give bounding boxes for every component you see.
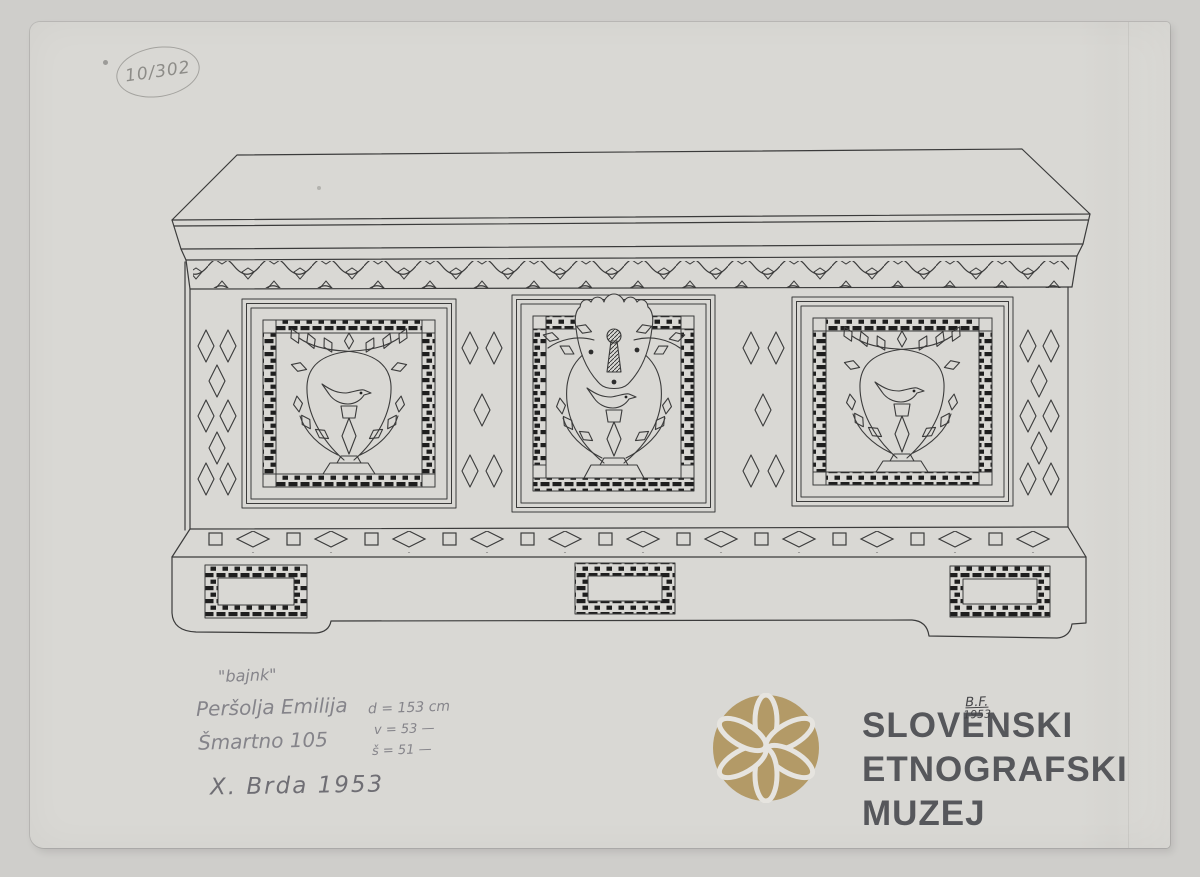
plinth-panel-left (205, 565, 307, 618)
chest-lid (172, 149, 1090, 260)
handwritten-initials-note: B.F. 1953 (963, 697, 992, 722)
handwritten-object-name: "bajnk" (218, 665, 277, 686)
handwritten-dim-height: v = 53 — (374, 721, 435, 738)
handwritten-address: Šmartno 105 (198, 727, 329, 754)
panel-right (792, 297, 1013, 506)
archive-number: 10/302 (124, 58, 192, 87)
museum-logo-text: SLOVENSKI ETNOGRAFSKI MUZEJ (862, 704, 1128, 836)
vine-frieze (186, 256, 1077, 289)
handwritten-region-year: X. Brda 1953 (210, 771, 385, 800)
logo-line-3: MUZEJ (862, 792, 1128, 836)
museum-logo-flower-icon (711, 693, 821, 803)
plinth (172, 557, 1086, 638)
initials-year: 1953 (963, 709, 991, 722)
panel-center (512, 294, 715, 512)
plinth-panel-center (575, 563, 675, 614)
logo-line-1: SLOVENSKI (862, 704, 1128, 748)
handwritten-owner: Peršolja Emilija (196, 693, 348, 721)
bottom-rail (172, 527, 1086, 557)
logo-line-2: ETNOGRAFSKI (862, 748, 1128, 792)
handwritten-dim-length: d = 153 cm (368, 699, 451, 718)
scanned-archive-sheet: 10/302 "bajnk" Peršolja Emilija Šmartno … (0, 0, 1200, 877)
plinth-panel-right (950, 566, 1050, 617)
handwritten-dim-width: š = 51 — (372, 742, 432, 759)
panel-left (242, 299, 456, 508)
